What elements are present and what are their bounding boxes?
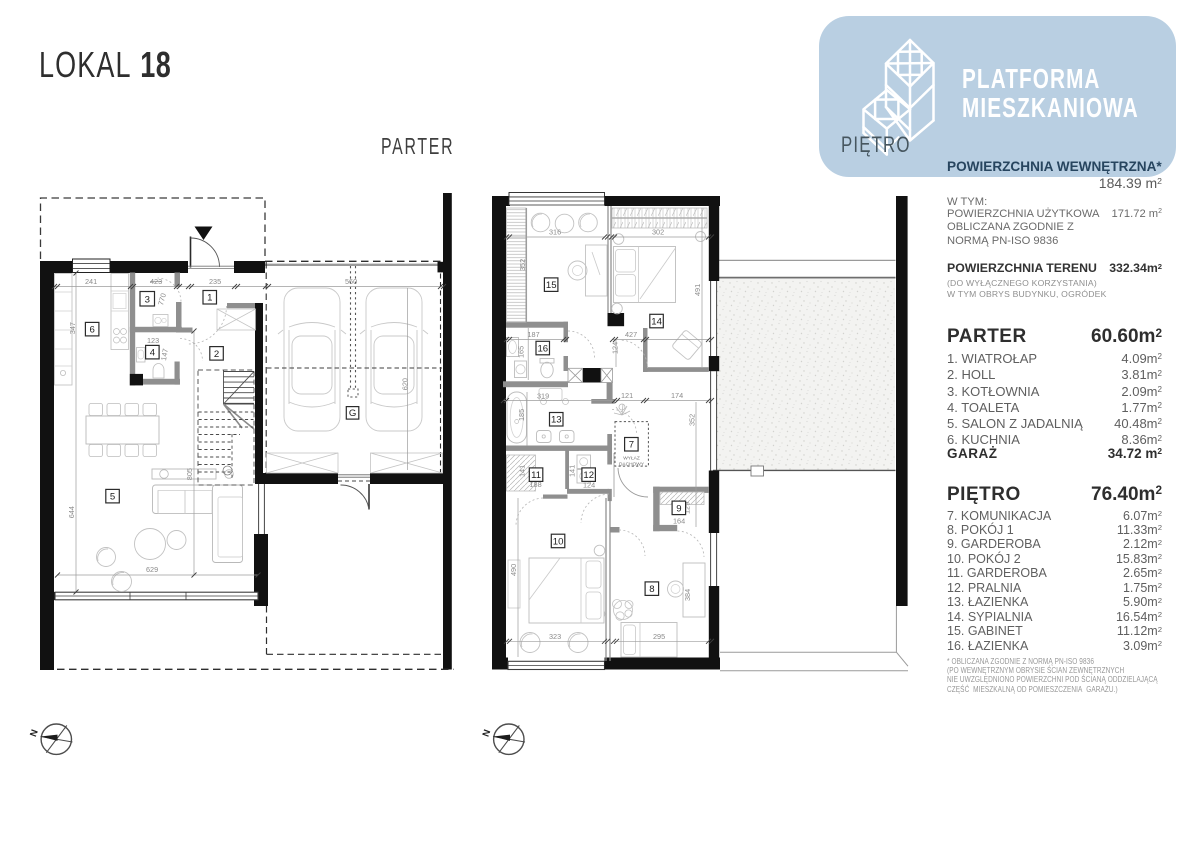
svg-text:185: 185 [517,409,526,421]
svg-text:490: 490 [509,564,518,576]
svg-text:241: 241 [85,277,97,286]
svg-text:1: 1 [207,293,212,304]
svg-text:10: 10 [553,536,564,547]
svg-text:4: 4 [150,348,156,359]
svg-text:644: 644 [67,506,76,518]
svg-text:N: N [481,728,494,738]
svg-text:15: 15 [546,280,557,291]
svg-text:491: 491 [693,284,702,296]
svg-text:187: 187 [528,330,540,339]
svg-text:319: 319 [537,392,549,401]
svg-text:14: 14 [651,317,662,328]
svg-text:164: 164 [673,517,685,526]
svg-text:3: 3 [145,294,150,305]
svg-text:13: 13 [551,415,562,426]
svg-text:347: 347 [68,322,77,334]
svg-text:423: 423 [150,277,162,286]
svg-text:174: 174 [671,391,683,400]
svg-text:384: 384 [683,589,692,601]
svg-text:770: 770 [156,292,168,306]
svg-text:123: 123 [147,336,159,345]
svg-text:12: 12 [583,470,594,481]
svg-text:560: 560 [345,277,357,286]
svg-text:323: 323 [549,632,561,641]
svg-text:DACHOWY: DACHOWY [619,462,645,468]
svg-text:352: 352 [518,259,527,271]
svg-text:295: 295 [653,632,665,641]
svg-text:G: G [349,408,356,419]
svg-text:6: 6 [90,325,95,336]
svg-text:805: 805 [185,468,194,480]
svg-text:11: 11 [531,470,541,481]
svg-text:352: 352 [688,414,697,426]
svg-text:141: 141 [568,465,577,477]
svg-text:235: 235 [209,277,221,286]
svg-text:302: 302 [652,228,664,237]
svg-text:121: 121 [621,391,633,400]
svg-text:316: 316 [549,228,561,237]
svg-text:16: 16 [537,344,548,355]
svg-text:2: 2 [214,349,219,360]
svg-text:165: 165 [517,346,526,358]
svg-text:5: 5 [110,492,115,503]
svg-text:141: 141 [518,465,527,477]
svg-text:620: 620 [401,378,410,390]
svg-text:427: 427 [625,330,637,339]
svg-text:WYŁAZ: WYŁAZ [623,456,640,462]
svg-text:147: 147 [159,348,170,362]
svg-text:9: 9 [676,503,681,514]
svg-text:124: 124 [611,342,620,354]
svg-text:7: 7 [629,440,634,451]
svg-text:629: 629 [146,565,158,574]
svg-text:8: 8 [649,584,654,595]
svg-text:N: N [28,728,41,738]
